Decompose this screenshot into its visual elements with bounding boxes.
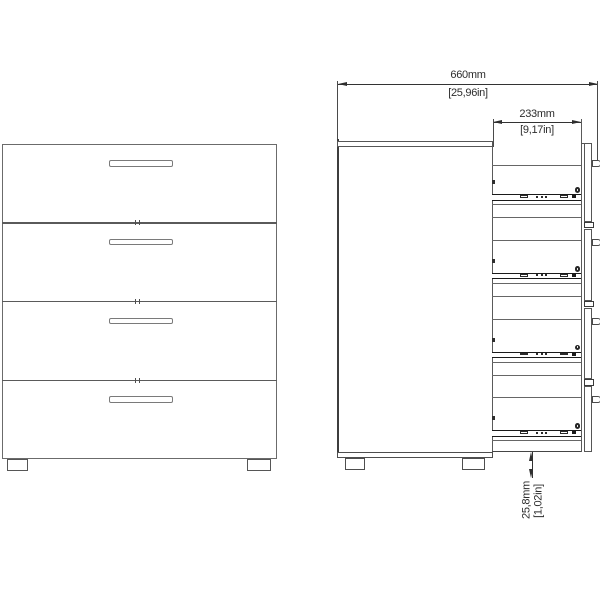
side-slide-roller [575,187,581,193]
rail-rivet [536,274,538,276]
front-drawer-handle [109,396,173,403]
side-drawer-slide-rail [492,194,581,201]
side-view-carcass-front-edge [492,147,493,452]
side-slide-mount-tick [492,259,495,263]
side-drawer-line [492,283,581,284]
side-drawer-knob [592,396,600,403]
rail-slot [560,353,568,356]
side-view-back-edge [337,139,339,457]
overall-dimension-metric-label: 660mm [338,70,598,81]
roller-center-dot [577,425,579,427]
side-drawer-front-panel [584,229,592,301]
side-view-drawer-column-bottom [492,451,581,453]
rail-rivet [536,353,538,355]
rail-slot [560,431,568,434]
rail-slot [520,431,528,434]
front-divider-joint-mark [135,299,136,304]
front-drawer-handle [109,160,173,167]
roller-center-dot [577,189,579,191]
front-divider-joint-mark [139,299,140,304]
base-clearance-imperial-label: [1,02in] [533,484,544,518]
rail-slot [560,195,568,198]
rail-slot [520,274,528,277]
rail-stop-block [572,353,576,356]
roller-center-dot [577,346,579,348]
side-drawer-line [492,375,581,376]
rail-stop-block [572,195,576,198]
side-drawer-slide-rail [492,352,581,359]
overall-dimension-line [338,84,598,85]
side-view-right-foot [462,458,485,471]
base-clearance-metric-label: 25,8mm [521,481,532,519]
rail-stop-block [572,274,576,277]
front-view-right-foot [247,459,271,471]
front-divider-joint-mark [135,378,136,383]
dimension-drawing-canvas: 660mm [25,96in] 233mm [9,17in] 25,8mm [1… [0,0,600,600]
rail-slot [520,353,528,356]
side-drawer-top-line [492,319,581,320]
rail-rivet [536,432,538,434]
rail-rivet [536,196,538,198]
side-slide-mount-tick [492,338,495,342]
drawer-depth-metric-label: 233mm [488,109,586,120]
overall-dimension-arrow-left-icon [338,82,347,86]
rail-rivet [541,353,543,355]
side-drawer-front-gap [584,222,594,229]
side-drawer-knob [592,160,600,167]
front-divider-joint-mark [135,220,136,225]
front-view-left-foot [7,459,28,471]
front-divider-joint-mark [139,378,140,383]
side-drawer-top-line [492,165,581,166]
side-drawer-front-gap [584,379,594,386]
front-divider-joint-mark [139,220,140,225]
side-slide-mount-tick [492,416,495,420]
side-drawer-line [492,440,581,441]
base-clearance-arrow-up-icon [529,452,533,461]
side-view-left-foot [345,458,365,471]
overall-dimension-arrow-right-icon [589,82,598,86]
side-drawer-front-panel [584,143,592,222]
side-drawer-slide-rail [492,273,581,280]
drawer-depth-arrow-left-icon [493,120,502,124]
side-drawer-front-panel [584,386,592,451]
rail-stop-block [572,431,576,434]
side-view-drawer-box-front-edge [581,119,582,452]
side-drawer-line [492,296,581,297]
rail-slot [520,195,528,198]
side-drawer-knob [592,239,600,246]
front-drawer-handle [109,318,173,325]
side-drawer-slide-rail [492,430,581,437]
side-slide-roller [575,423,581,429]
side-slide-mount-tick [492,180,495,184]
rail-rivet [541,432,543,434]
front-drawer-handle [109,239,173,246]
rail-rivet [541,196,543,198]
rail-slot [560,274,568,277]
side-drawer-front-panel [584,308,592,380]
side-view-top-panel [337,141,493,148]
overall-dimension-imperial-label: [25,96in] [338,88,598,99]
side-drawer-line [492,217,581,218]
side-drawer-line [492,204,581,205]
drawer-depth-arrow-right-icon [572,120,581,124]
base-clearance-arrow-down-icon [529,469,533,478]
side-drawer-top-line [492,397,581,398]
rail-rivet [545,432,547,434]
side-drawer-knob [592,318,600,325]
side-slide-roller [575,266,581,272]
drawer-depth-imperial-label: [9,17in] [488,125,586,136]
side-slide-roller [575,345,581,351]
rail-rivet [545,274,547,276]
side-drawer-line [492,362,581,363]
rail-rivet [545,196,547,198]
roller-center-dot [577,268,579,270]
side-drawer-top-line [492,240,581,241]
rail-rivet [541,274,543,276]
rail-rivet [545,353,547,355]
side-drawer-front-gap [584,301,594,308]
